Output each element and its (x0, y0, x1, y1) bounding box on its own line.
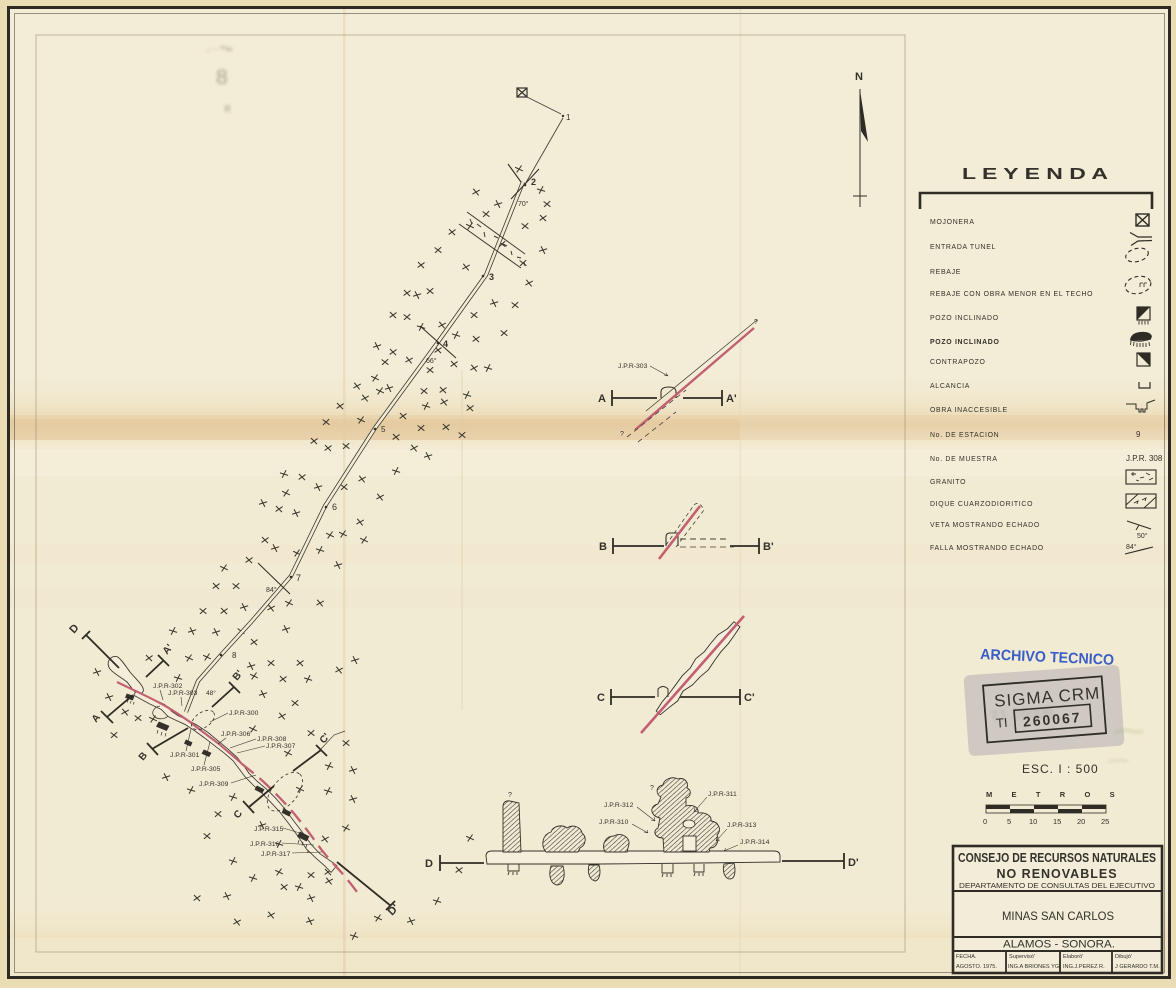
svg-text:я: я (224, 101, 231, 115)
svg-text:Supervisó': Supervisó' (1009, 954, 1035, 960)
svg-text:POZO INCLINADO: POZO INCLINADO (930, 315, 999, 322)
svg-text:J.P.R-303: J.P.R-303 (618, 363, 648, 370)
svg-text:?: ? (754, 319, 758, 326)
svg-text:J.P.R-313: J.P.R-313 (727, 822, 757, 829)
svg-text:8: 8 (232, 651, 237, 660)
svg-text:FECHA.: FECHA. (956, 954, 977, 960)
svg-text:No. DE MUESTRA: No. DE MUESTRA (930, 456, 998, 463)
svg-text:J.P.R-307: J.P.R-307 (266, 743, 296, 750)
svg-text:J.P.R-301: J.P.R-301 (170, 752, 200, 759)
svg-text:B: B (599, 541, 607, 553)
svg-text:J.P.R-312: J.P.R-312 (604, 802, 634, 809)
svg-text:25: 25 (1101, 817, 1109, 826)
svg-text:REBAJE CON OBRA MENOR EN: REBAJE CON OBRA MENOR EN EL TECHO (930, 291, 1093, 298)
svg-text:20: 20 (1077, 817, 1085, 826)
svg-text:J.P.R-310: J.P.R-310 (599, 819, 629, 826)
svg-text:?: ? (650, 785, 654, 792)
svg-text:.: ·· **••: .: ·· **•• (206, 45, 232, 54)
svg-text:METROS: METROS (986, 790, 1134, 799)
svg-text:5: 5 (381, 425, 386, 434)
svg-text:CONSEJO DE RECURSOS NATURALES: CONSEJO DE RECURSOS NATURALES (958, 851, 1156, 865)
svg-text:CONTRAPOZO: CONTRAPOZO (930, 359, 986, 366)
svg-text:7: 7 (296, 573, 301, 583)
svg-text:L E Y E N D A: L E Y E N D A (962, 166, 1109, 183)
svg-text:0: 0 (983, 817, 987, 826)
svg-text:A': A' (726, 393, 737, 405)
svg-text:Dibujó': Dibujó' (1115, 954, 1132, 960)
svg-text:70°: 70° (518, 200, 529, 208)
svg-text:C': C' (744, 692, 755, 704)
svg-text:?: ? (508, 792, 512, 799)
svg-text:A: A (598, 393, 606, 405)
svg-text:J.P.R-315: J.P.R-315 (254, 826, 284, 833)
svg-text:10: 10 (1029, 817, 1037, 826)
svg-text:J.P.R-308: J.P.R-308 (257, 736, 287, 743)
svg-text:ALAMOS - SONORA.: ALAMOS - SONORA. (1003, 939, 1115, 951)
svg-text:J.P.R-303: J.P.R-303 (168, 690, 198, 697)
svg-text:?: ? (620, 431, 624, 438)
svg-text:4: 4 (443, 339, 448, 349)
svg-text:ING.J.PEREZ R.: ING.J.PEREZ R. (1063, 964, 1105, 970)
svg-text:C: C (597, 692, 605, 704)
svg-text:GRANITO: GRANITO (930, 479, 966, 486)
svg-text:No. DE ESTACION: No. DE ESTACION (930, 432, 999, 439)
svg-text:D: D (425, 858, 433, 870)
svg-text:J.P.R-314: J.P.R-314 (740, 839, 770, 846)
svg-text:1: 1 (566, 113, 571, 122)
svg-text:J.P.R-309: J.P.R-309 (199, 781, 229, 788)
svg-text:J.P.R-302: J.P.R-302 (153, 683, 183, 690)
svg-text:N: N (855, 71, 863, 83)
svg-text:POZO INCLINADO: POZO INCLINADO (930, 339, 1000, 346)
svg-text:50°: 50° (1137, 532, 1148, 540)
svg-text:J.P.R-317: J.P.R-317 (261, 851, 291, 858)
svg-text:FALLA MOSTRANDO ECHADO: FALLA MOSTRANDO ECHADO (930, 545, 1044, 552)
svg-text:15: 15 (1053, 817, 1061, 826)
svg-text:84°: 84° (266, 586, 277, 594)
svg-text:ING.A BRIONES YG: ING.A BRIONES YG (1008, 964, 1059, 970)
svg-text:J.P.R-305: J.P.R-305 (191, 766, 221, 773)
svg-text:OBRA INACCESIBLE: OBRA INACCESIBLE (930, 407, 1008, 414)
svg-text:J.P.R-316: J.P.R-316 (250, 841, 280, 848)
svg-text:ALCANCIA: ALCANCIA (930, 383, 970, 390)
svg-text:J.P.R. 308: J.P.R. 308 (1126, 454, 1163, 463)
svg-text:AGOSTO. 1975.: AGOSTO. 1975. (956, 964, 997, 970)
svg-text:66°: 66° (426, 357, 437, 365)
svg-text:3: 3 (489, 272, 494, 282)
svg-text:NO RENOVABLES: NO RENOVABLES (996, 867, 1117, 881)
svg-text:REBAJE: REBAJE (930, 269, 961, 276)
svg-text:J.P.R-311: J.P.R-311 (708, 791, 737, 798)
svg-text:DIQUE CUARZODIORITICO: DIQUE CUARZODIORITICO (930, 501, 1033, 508)
svg-text:ENTRADA TUNEL: ENTRADA TUNEL (930, 244, 996, 251)
svg-text:B': B' (763, 541, 774, 553)
svg-text:Elaboró': Elaboró' (1063, 954, 1083, 960)
svg-text:MOJONERA: MOJONERA (930, 219, 975, 226)
svg-text:48°: 48° (206, 689, 216, 697)
svg-text:J GERARDO T.M.: J GERARDO T.M. (1115, 964, 1160, 970)
svg-text:J.P.R-306: J.P.R-306 (221, 731, 251, 738)
svg-text:2: 2 (531, 177, 536, 187)
svg-text:6: 6 (332, 502, 337, 512)
svg-text:D': D' (848, 857, 859, 869)
svg-text:J.P.R-300: J.P.R-300 (229, 710, 259, 717)
svg-text:84°: 84° (1126, 543, 1137, 551)
svg-text:8: 8 (216, 66, 228, 89)
svg-text:MINAS SAN CARLOS: MINAS SAN CARLOS (1002, 911, 1114, 923)
svg-text:9: 9 (1136, 430, 1141, 439)
svg-text:DEPARTAMENTO DE CONSULTAS DEL: DEPARTAMENTO DE CONSULTAS DEL EJECUTIVO (959, 883, 1156, 890)
svg-text:5: 5 (1007, 817, 1011, 826)
svg-text:VETA MOSTRANDO ECHADO: VETA MOSTRANDO ECHADO (930, 522, 1040, 529)
svg-text:ESC. I : 500: ESC. I : 500 (1022, 762, 1099, 776)
